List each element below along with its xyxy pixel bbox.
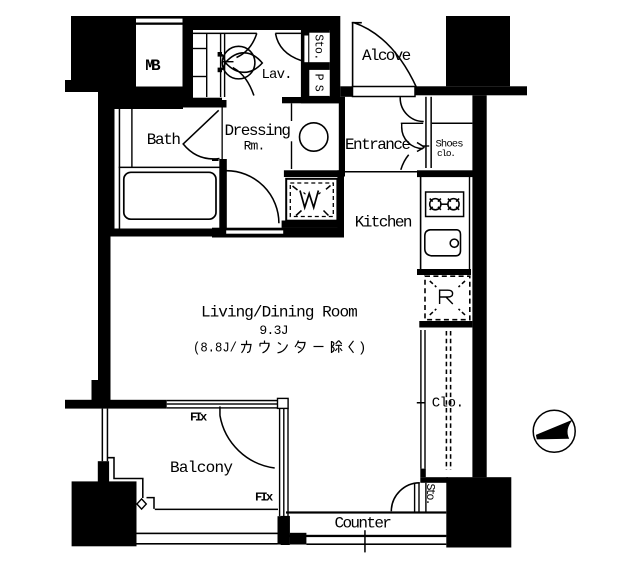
svg-text:Clo.: Clo. — [432, 396, 464, 412]
svg-text:9.3J: 9.3J — [259, 323, 288, 338]
svg-text:Rm.: Rm. — [244, 139, 266, 154]
svg-text:clo.: clo. — [437, 148, 456, 159]
svg-text:FIx: FIx — [255, 490, 273, 504]
svg-text:Bath: Bath — [147, 131, 181, 149]
svg-text:Lav.: Lav. — [262, 67, 293, 83]
svg-text:(8.8J/: (8.8J/ — [193, 340, 237, 356]
svg-text:Kitchen: Kitchen — [355, 213, 413, 231]
svg-text:): ) — [358, 340, 366, 356]
svg-text:MB: MB — [145, 57, 161, 75]
svg-text:Alcove: Alcove — [362, 47, 411, 65]
svg-text:Entrance: Entrance — [345, 136, 411, 154]
svg-text:Balcony: Balcony — [170, 459, 233, 477]
svg-text:Sto.: Sto. — [423, 484, 436, 506]
svg-text:Dressing: Dressing — [225, 122, 292, 140]
svg-text:Sto.: Sto. — [311, 34, 324, 60]
svg-text:FIx: FIx — [190, 410, 207, 424]
svg-text:Counter: Counter — [335, 515, 392, 533]
svg-text:Living/Dining Room: Living/Dining Room — [201, 303, 358, 321]
